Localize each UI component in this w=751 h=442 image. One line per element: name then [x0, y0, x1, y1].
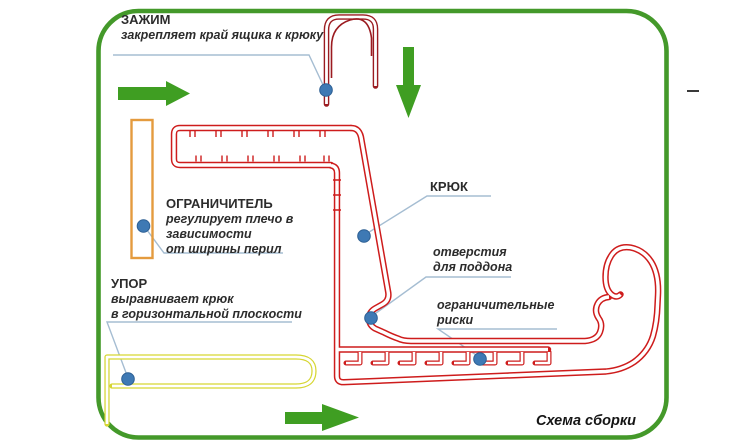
marker-dot-icon: [365, 312, 378, 325]
label-stop-title: УПОР: [111, 276, 302, 291]
label-tray-holes-desc: отверстия: [433, 245, 512, 260]
callout-line-clamp: [113, 55, 324, 87]
marker-dot-icon: [358, 230, 371, 243]
label-tray-holes: отверстия для поддона: [433, 245, 512, 275]
label-tray-holes-desc: для поддона: [433, 260, 512, 275]
clamp-spring-insert: [332, 19, 372, 78]
marker-dot-icon: [320, 84, 333, 97]
marker-dot-icon: [474, 353, 487, 366]
label-stop-desc: в горизонтальной плоскости: [111, 307, 302, 322]
arrow-down-icon: [396, 47, 421, 118]
limit-marks-notches: [346, 352, 549, 363]
limiter-bar: [132, 120, 153, 258]
clamp-shape: [327, 17, 376, 104]
label-limiter-desc: от ширины перил: [166, 242, 293, 257]
stop-profile: [107, 357, 314, 424]
marker-dot-icon: [122, 373, 135, 386]
callout-line-stop: [107, 322, 292, 378]
assembly-diagram: ЗАЖИМ закрепляет край ящика к крюку ОГРА…: [0, 0, 751, 442]
label-clamp: ЗАЖИМ закрепляет край ящика к крюку: [121, 12, 323, 43]
callout-line-hook: [366, 196, 491, 234]
arrow-right-icon: [285, 404, 359, 431]
label-limiter-title: ОГРАНИЧИТЕЛЬ: [166, 196, 293, 211]
label-clamp-title: ЗАЖИМ: [121, 12, 323, 27]
label-limit-marks-desc: ограничительные: [437, 298, 554, 313]
label-hook: КРЮК: [430, 179, 468, 195]
label-limit-marks: ограничительные риски: [437, 298, 554, 328]
diagram-canvas: [0, 0, 751, 442]
label-limiter-desc: регулирует плечо в: [166, 212, 293, 227]
label-hook-title: КРЮК: [430, 179, 468, 194]
label-stop-desc: выравнивает крюк: [111, 292, 302, 307]
arrow-right-icon: [118, 81, 190, 106]
label-limiter-desc: зависимости: [166, 227, 293, 242]
marker-dot-icon: [137, 220, 150, 233]
label-stop: УПОР выравнивает крюк в горизонтальной п…: [111, 276, 302, 322]
label-limiter: ОГРАНИЧИТЕЛЬ регулирует плечо в зависимо…: [166, 196, 293, 257]
label-clamp-desc: закрепляет край ящика к крюку: [121, 28, 323, 43]
diagram-caption: Схема сборки: [536, 413, 636, 429]
label-limit-marks-desc: риски: [437, 313, 554, 328]
